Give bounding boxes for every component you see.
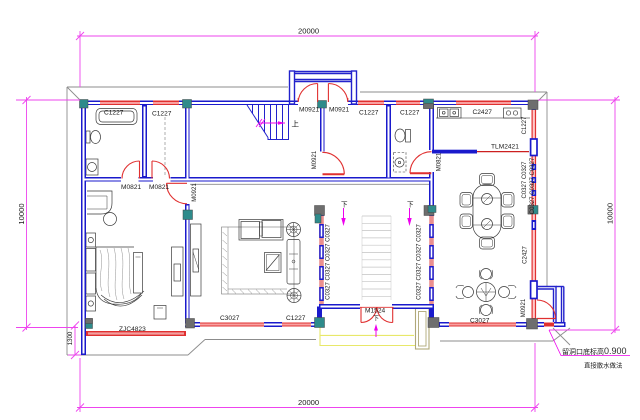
svg-text:C3027: C3027 — [470, 318, 490, 325]
svg-text:C3027: C3027 — [220, 315, 240, 322]
svg-text:C1227: C1227 — [400, 110, 420, 117]
svg-text:C0327 C0327 C0327: C0327 C0327 C0327 — [530, 157, 536, 214]
svg-text:下: 下 — [407, 201, 414, 209]
svg-text:ZJC4823: ZJC4823 — [119, 326, 146, 333]
svg-text:C1227: C1227 — [152, 111, 172, 118]
svg-text:10000: 10000 — [17, 203, 26, 224]
svg-text:上: 上 — [292, 120, 300, 129]
svg-text:下: 下 — [341, 201, 348, 209]
svg-text:C1227: C1227 — [104, 110, 124, 117]
svg-text:M0821: M0821 — [437, 152, 443, 171]
svg-text:M0921: M0921 — [299, 107, 319, 114]
svg-text:M0921: M0921 — [521, 298, 527, 317]
svg-text:M0921: M0921 — [192, 183, 198, 202]
svg-text:1300: 1300 — [67, 331, 74, 345]
svg-text:C1227: C1227 — [286, 315, 306, 322]
svg-text:直接散水做法: 直接散水做法 — [584, 361, 623, 370]
svg-text:C1227: C1227 — [359, 110, 379, 117]
svg-text:M0921: M0921 — [312, 150, 318, 169]
svg-text:C0327 C0327 C0327 C0327: C0327 C0327 C0327 C0327 — [326, 223, 332, 299]
svg-text:20000: 20000 — [298, 398, 319, 407]
svg-text:TLM2421: TLM2421 — [491, 144, 519, 151]
svg-text:下: 下 — [373, 316, 379, 323]
svg-text:20000: 20000 — [298, 27, 319, 36]
svg-text:M0821: M0821 — [121, 184, 141, 191]
svg-text:M1524: M1524 — [365, 308, 385, 315]
svg-text:10000: 10000 — [606, 203, 615, 224]
svg-text:C0327 C0327 C0327 C0327: C0327 C0327 C0327 C0327 — [417, 223, 423, 299]
svg-text:C1227: C1227 — [522, 116, 528, 134]
svg-text:C2427: C2427 — [523, 246, 529, 264]
svg-text:C2427: C2427 — [473, 109, 493, 116]
svg-text:M0821: M0821 — [149, 184, 169, 191]
svg-text:M0921: M0921 — [329, 107, 349, 114]
svg-text:C0327 C0327: C0327 C0327 — [522, 161, 528, 199]
